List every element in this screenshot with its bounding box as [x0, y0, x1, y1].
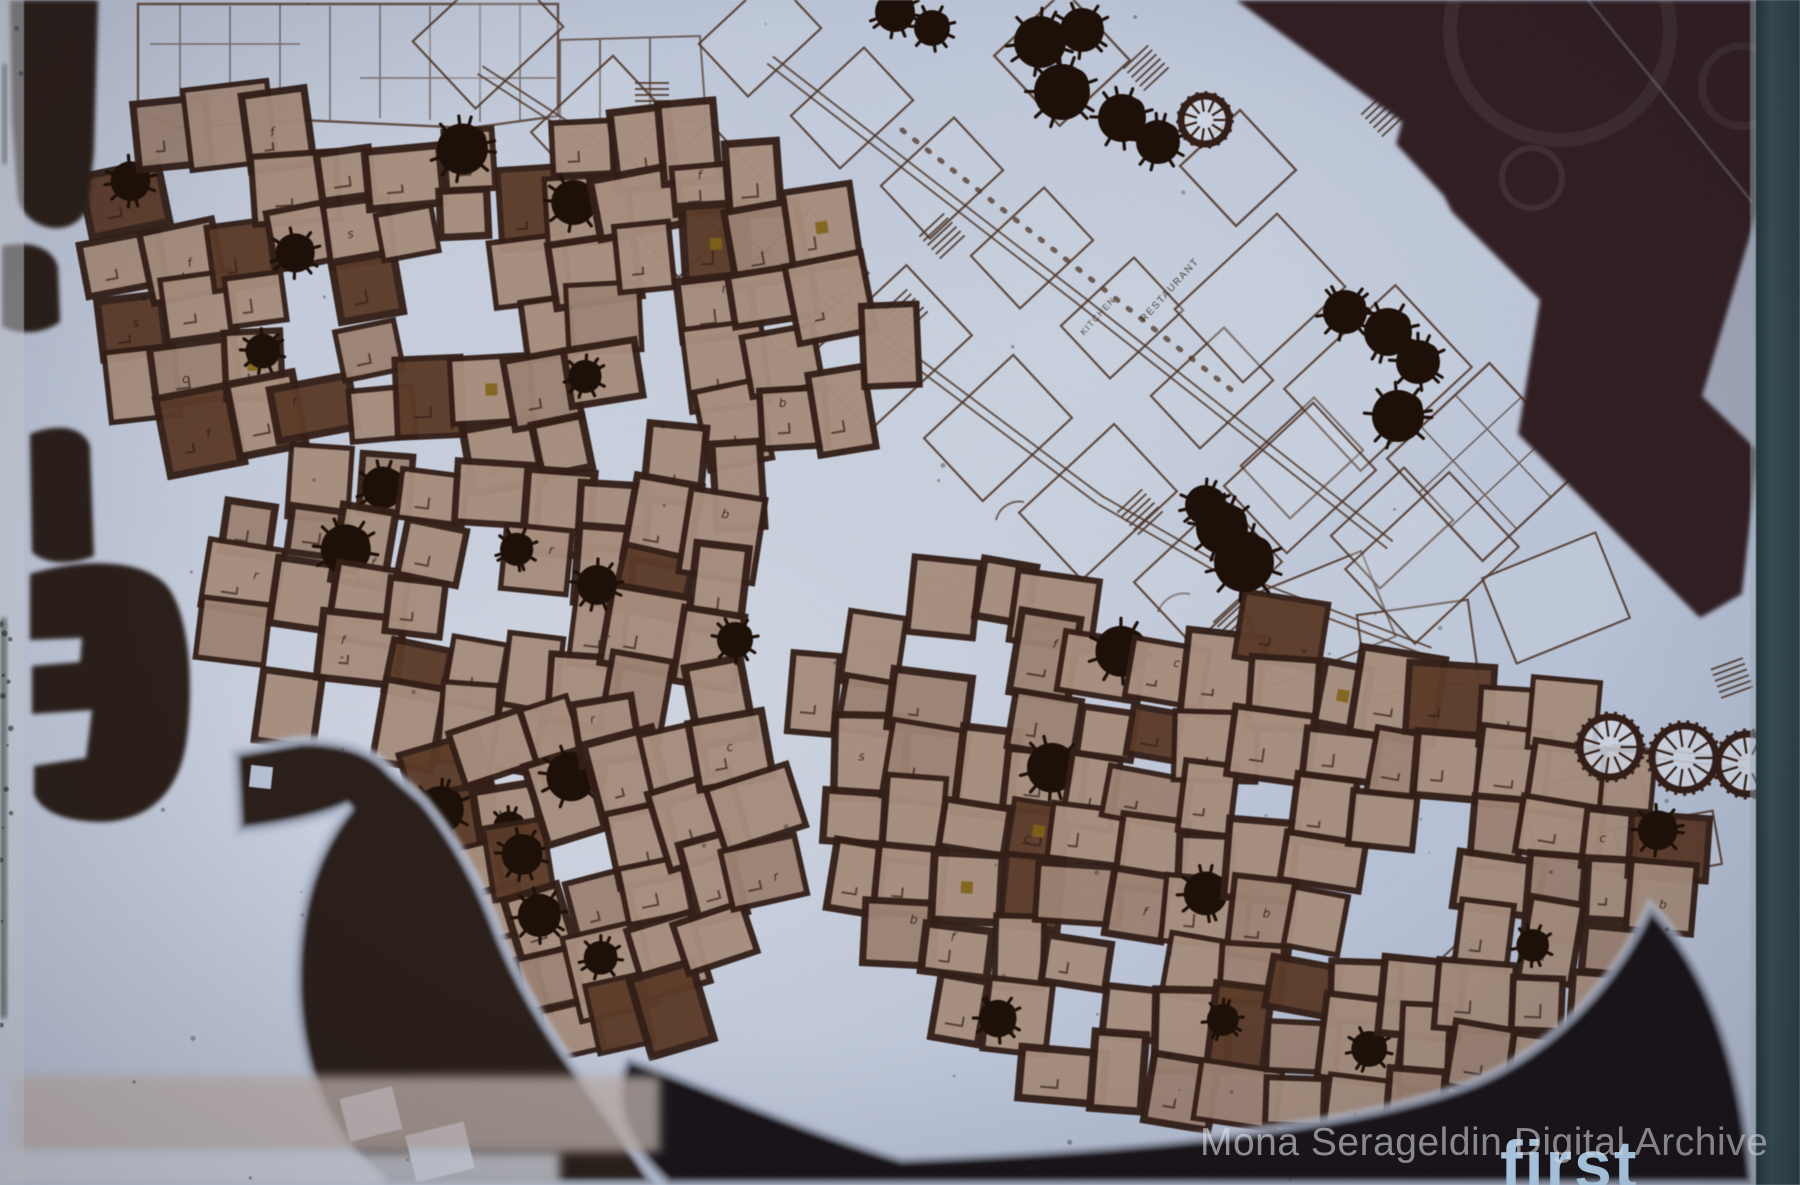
slide-photo: sfcffrsfrbrbffrbrcrsbffcbcfbccb RESTAURA… — [0, 0, 1800, 1185]
archive-watermark: Mona Serageldin Digital Archive — [1200, 1121, 1768, 1165]
site-plan-drawing: sfcffrsfrbrbffrbrcrsbffcbcfbccb RESTAURA… — [0, 0, 1800, 1185]
film-grain — [0, 0, 1800, 1185]
